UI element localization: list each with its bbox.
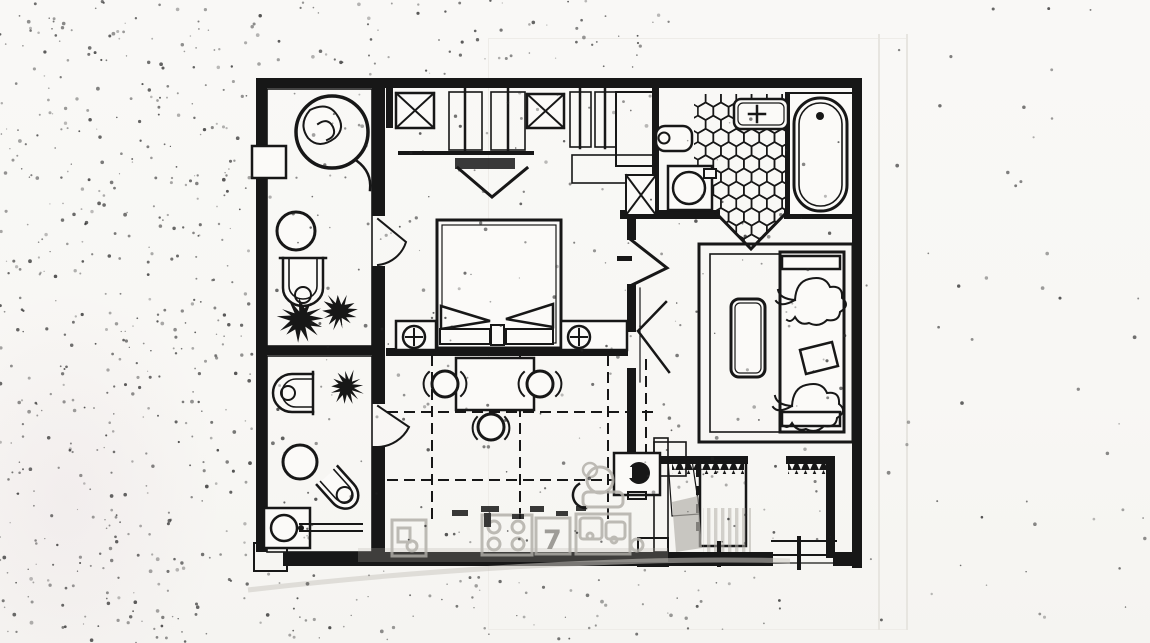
- speckle-noise: [0, 0, 1147, 643]
- page-curl-shadow: [248, 560, 790, 590]
- scanned-floorplan-page: 7: [0, 0, 1150, 643]
- scan-noise-layer: [0, 0, 1150, 643]
